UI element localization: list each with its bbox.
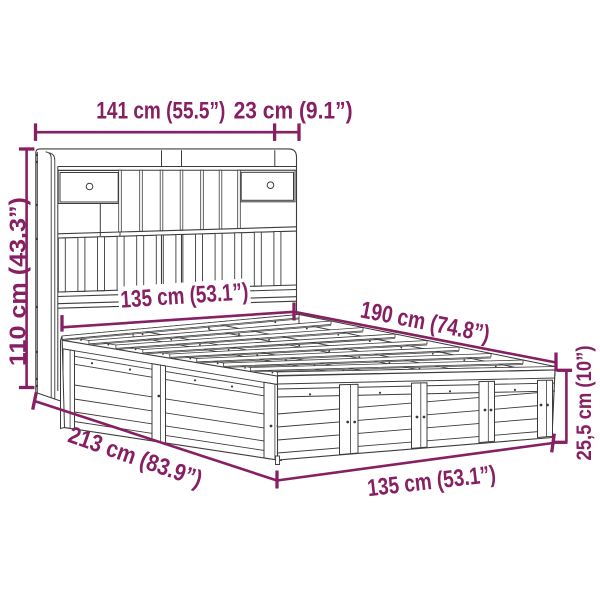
svg-text:23 cm (9.1”): 23 cm (9.1”) xyxy=(234,98,353,125)
svg-text:110 cm (43.3”): 110 cm (43.3”) xyxy=(5,197,31,366)
svg-text:141 cm (55.5”): 141 cm (55.5”) xyxy=(96,98,225,125)
svg-text:25,5 cm (10”): 25,5 cm (10”) xyxy=(573,346,596,461)
